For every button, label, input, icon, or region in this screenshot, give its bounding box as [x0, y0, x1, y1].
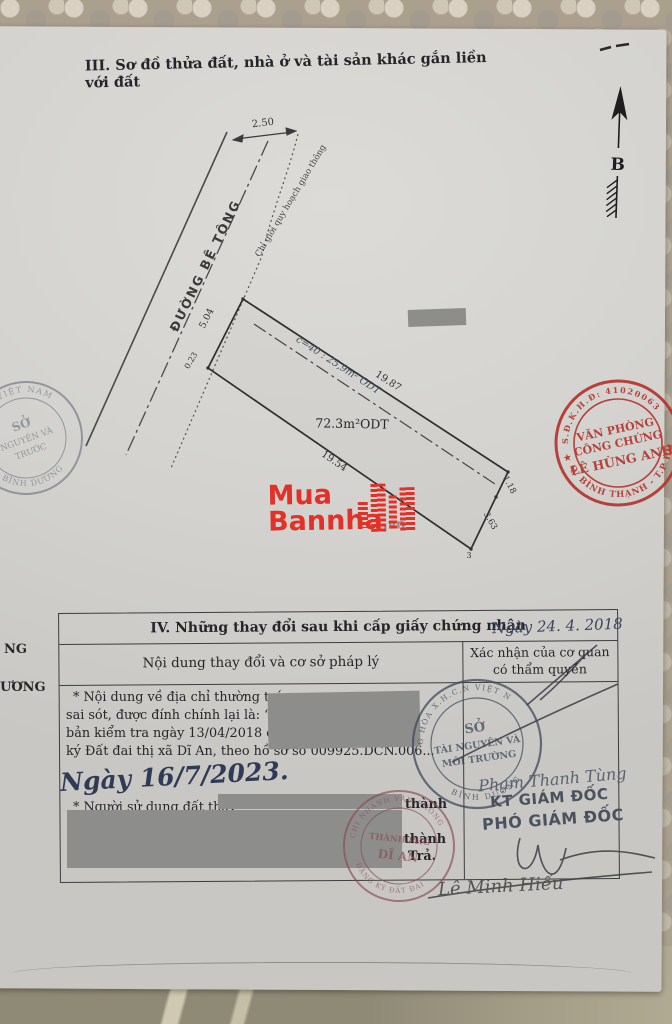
photo-of-land-certificate: { "document": { "section3_title": "III. … [0, 0, 672, 1024]
branch-line2: DĨ AN [377, 846, 419, 865]
body-line: bản kiểm tra ngày 13/04/2018 củ [66, 726, 282, 741]
body-line: * Nội dung về địa chỉ thường trú: [73, 690, 288, 705]
dimension-line-250 [233, 128, 296, 142]
redaction-box [268, 691, 421, 750]
edge-fragment: NG [4, 642, 27, 657]
edge-fragment: ƯƠNG [0, 680, 46, 695]
watermark: Mua Bannha.vn [267, 480, 458, 553]
branch-line1: THÀNH PHỐ [368, 829, 431, 848]
watermark-bar-icon [370, 484, 386, 532]
body-line: sai sót, được đính chính lại là: “T [66, 708, 279, 723]
watermark-bar-icon [358, 502, 368, 528]
redaction-box [408, 308, 467, 327]
watermark-bar-icon [389, 495, 398, 529]
dept-line1: SỞ [463, 717, 487, 738]
corner-point-label: 3 [462, 551, 476, 560]
watermark-bar-icon [399, 487, 415, 531]
plot-area-label: 72.3m²ODT [307, 415, 397, 432]
column-header-left: Nội dung thay đổi và cơ sở pháp lý [59, 641, 462, 685]
road-edge-line [86, 132, 227, 446]
left-stamp-line1: SỞ [9, 412, 33, 435]
